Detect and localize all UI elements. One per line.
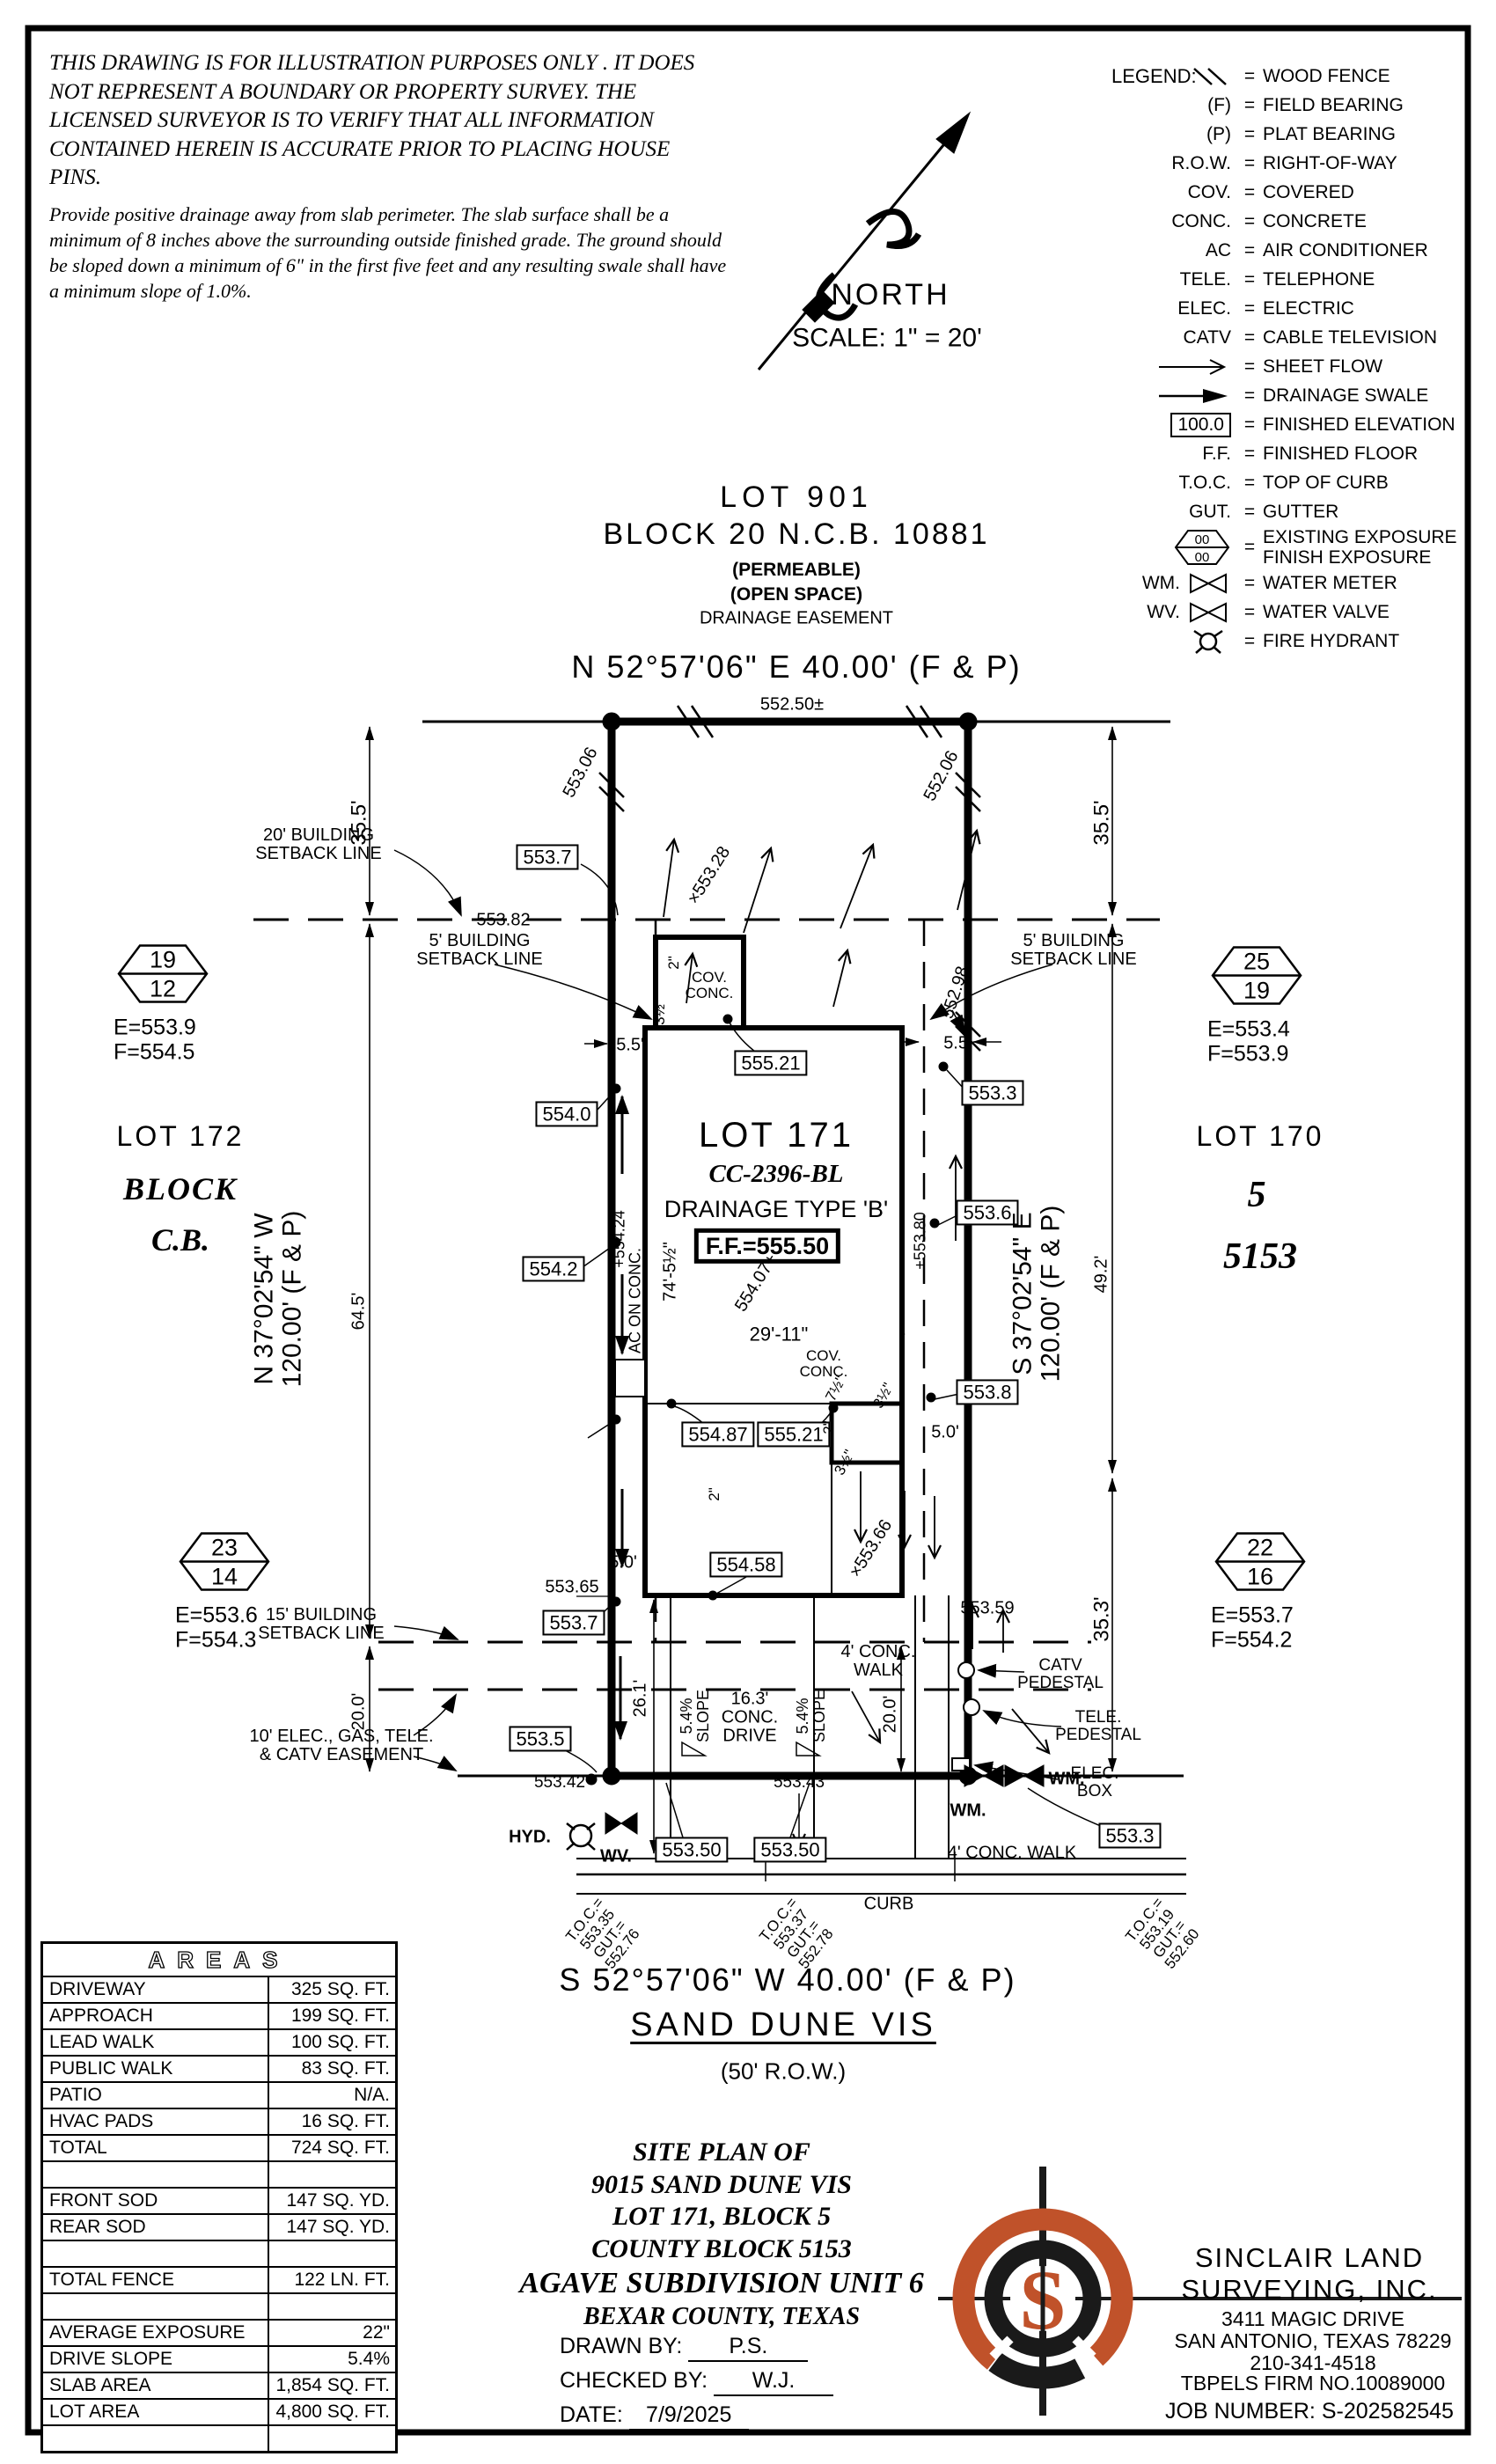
areas-table-row: DRIVEWAY325 SQ. FT. [43,1977,395,2004]
area-value: 122 LN. FT. [294,2270,390,2291]
plan-label: 5.5' [943,1035,972,1053]
svg-text:23: 23 [211,1535,238,1561]
legend-label: SHEET FLOW [1263,356,1382,377]
legend-row: CONC.=CONCRETE [1104,207,1474,236]
equals-sign: = [1236,631,1263,652]
area-label: DRIVEWAY [49,1979,146,2000]
equals-sign: = [1236,327,1263,348]
legend-row: CATV=CABLE TELEVISION [1104,323,1474,352]
equals-sign: = [1236,66,1263,87]
area-value: 724 SQ. FT. [291,2138,390,2159]
area-label: PATIO [49,2085,102,2106]
plan-label: CC-2396-BL [708,1161,843,1187]
equals-sign: = [1236,502,1263,523]
equals-sign: = [1236,573,1263,594]
plan-label: 5 [1248,1176,1266,1214]
area-value: 147 SQ. YD. [286,2217,390,2238]
equals-sign: = [1236,182,1263,203]
north-label: NORTH [831,280,950,312]
area-value: 199 SQ. FT. [291,2006,390,2027]
areas-table-row: APPROACH199 SQ. FT. [43,2004,395,2030]
area-label: PUBLIC WALK [49,2058,172,2079]
legend-label: PLAT BEARING [1263,124,1396,144]
legend-row: 100.0=FINISHED ELEVATION [1104,410,1474,439]
legend-label: FIRE HYDRANT [1263,631,1399,651]
legend-row: F.F.=FINISHED FLOOR [1104,439,1474,468]
legend-key: COV. [1104,182,1236,203]
legend-key: T.O.C. [1104,473,1236,494]
legend-label: COVERED [1263,182,1354,202]
plan-label: 553.7 [542,1610,605,1635]
plan-label: 553.59 [960,1600,1014,1618]
title-line: 9015 SAND DUNE VIS [475,2169,968,2202]
plan-label: 49.2' [1093,1256,1111,1294]
plan-label: CATVPEDESTAL [1017,1657,1104,1692]
exposure-hexagon: 19 12 E=553.9 F=554.5 [114,939,212,1065]
company-address1: 3411 MAGIC DRIVE [1221,2307,1404,2331]
areas-table-row: FRONT SOD147 SQ. YD. [43,2189,395,2215]
legend-label: WOOD FENCE [1263,66,1390,86]
plan-label: 553.42 [534,1774,585,1792]
legend-row: TELE.=TELEPHONE [1104,265,1474,294]
plan-label: 553.8 [956,1379,1018,1404]
disclaimer-notes: THIS DRAWING IS FOR ILLUSTRATION PURPOSE… [49,49,727,304]
areas-table-row: PUBLIC WALK83 SQ. FT. [43,2057,395,2083]
lot-172-label: LOT 172 [117,1122,245,1152]
legend-row: T.O.C.=TOP OF CURB [1104,468,1474,497]
legend-label: CONCRETE [1263,211,1367,231]
setback-5-right-label: 5' BUILDINGSETBACK LINE [1010,932,1136,969]
plan-label: 2" [707,1487,722,1501]
area-value: 83 SQ. FT. [302,2058,390,2079]
legend-row: WM.=WATER METER [1104,568,1474,598]
areas-table-divider [268,1976,269,2451]
areas-table-row [43,2294,395,2321]
legend-label: TELEPHONE [1263,269,1375,290]
plan-label: +553.80 [913,1212,929,1270]
legend-row: WV.=WATER VALVE [1104,598,1474,627]
area-label: REAR SOD [49,2217,146,2238]
legend-row: =FIRE HYDRANT [1104,627,1474,656]
plan-label: 554.0 [535,1101,598,1126]
area-label: TOTAL [49,2138,107,2159]
plan-label: 553.3 [1098,1822,1161,1848]
existing-elevation: E=553.7 [1211,1603,1309,1628]
areas-table: AREAS DRIVEWAY325 SQ. FT.APPROACH199 SQ.… [40,1941,398,2453]
svg-text:12: 12 [150,976,176,1002]
hex-icon: 0000 [1104,526,1236,568]
plan-label: 74'-5½" [662,1242,680,1302]
plan-label: (OPEN SPACE) [730,585,862,605]
plan-label: HYD. [509,1829,551,1847]
legend-row: (P)=PLAT BEARING [1104,120,1474,149]
equals-sign: = [1236,240,1263,261]
finish-elevation: F=553.9 [1207,1042,1306,1067]
areas-table-row: HVAC PADS16 SQ. FT. [43,2109,395,2136]
title-line: LOT 171, BLOCK 5 [475,2201,968,2233]
plan-label: 64.5' [350,1293,369,1331]
plan-label: 553.3 [961,1080,1023,1105]
plan-label: 5.5' [616,1037,644,1055]
plan-label: DRAINAGE TYPE 'B' [664,1197,888,1221]
area-label: TOTAL FENCE [49,2270,174,2291]
equals-sign: = [1236,444,1263,465]
legend: LEGEND: =WOOD FENCE(F)=FIELD BEARING(P)=… [1104,62,1474,656]
drawn-by-label: DRAWN BY: [560,2334,682,2358]
legend-row: COV.=COVERED [1104,178,1474,207]
bearing-north: N 52°57'06" E 40.00' (F & P) [571,650,1021,684]
bowtie-icon: WV. [1104,601,1236,624]
arrow-open-icon [1104,356,1236,378]
legend-key: TELE. [1104,269,1236,290]
existing-elevation: E=553.4 [1207,1017,1306,1042]
areas-table-row: PATION/A. [43,2083,395,2109]
plan-label: 553.5 [509,1726,571,1751]
area-value: 4,800 SQ. FT. [275,2402,390,2423]
plan-label: 5.0' [931,1424,959,1442]
plan-label: DRAINAGE EASEMENT [700,610,893,628]
area-label: DRIVE SLOPE [49,2349,172,2370]
finish-elevation: F=554.5 [114,1040,212,1065]
fire-hydrant-icon [567,1823,595,1850]
plan-label: C.B. [151,1224,209,1258]
svg-text:19: 19 [1243,978,1270,1004]
area-value: 16 SQ. FT. [302,2111,390,2132]
svg-text:22: 22 [1247,1535,1273,1561]
area-label: LOT AREA [49,2402,139,2423]
bearing-south: S 52°57'06" W 40.00' (F & P) [559,1963,1016,1997]
exposure-hexagon: 22 16 E=553.7 F=554.2 [1211,1527,1309,1653]
legend-label: CABLE TELEVISION [1263,327,1437,348]
title-line: BEXAR COUNTY, TEXAS [475,2302,968,2332]
conc-drive-label: 16.3'CONC.DRIVE [722,1690,778,1746]
checked-by-value: W.J. [714,2368,833,2396]
plan-label: 553.7 [516,844,578,869]
equals-sign: = [1236,211,1263,232]
equals-sign: = [1236,385,1263,407]
area-label: SLAB AREA [49,2375,151,2396]
areas-table-row: LOT AREA4,800 SQ. FT. [43,2400,395,2426]
lot-901-label: LOT 901 [720,482,873,514]
scale-label: SCALE: 1" = 20' [792,324,982,352]
areas-table-row [43,2426,395,2451]
plan-label: WM. [950,1802,986,1821]
setback-5-left-label: 5' BUILDINGSETBACK LINE [416,932,542,969]
legend-key: GUT. [1104,502,1236,523]
legend-label: ELECTRIC [1263,298,1354,319]
legend-label: EXISTING EXPOSUREFINISH EXPOSURE [1263,527,1457,568]
equals-sign: = [1236,298,1263,319]
legend-key: R.O.W. [1104,153,1236,174]
legend-row: =DRAINAGE SWALE [1104,381,1474,410]
legend-key: CATV [1104,327,1236,348]
equals-sign: = [1236,356,1263,378]
area-value: 22" [363,2322,390,2343]
bearing-west: N 37°02'54" W120.00' (F & P) [251,1211,306,1388]
plan-label: 20.0' [350,1693,369,1731]
legend-row: GUT.=GUTTER [1104,497,1474,526]
legend-title: LEGEND: [1111,65,1197,88]
plan-label: COV.CONC. [800,1348,848,1380]
areas-table-row: TOTAL724 SQ. FT. [43,2136,395,2162]
arrow-solid-icon [1104,385,1236,407]
hexagon-icon: 25 19 [1207,941,1306,1011]
plan-label: 26.1' [632,1680,650,1718]
plan-label: 553.82 [476,912,530,930]
existing-elevation: E=553.6 [175,1603,274,1628]
hydrant-icon [1104,627,1236,656]
areas-table-row: DRIVE SLOPE5.4% [43,2347,395,2373]
svg-text:25: 25 [1243,949,1270,975]
plan-label: 552.50± [760,696,824,715]
plan-label: BLOCK [123,1173,238,1206]
signoff-block: DRAWN BY: P.S. CHECKED BY: W.J. DATE: 7/… [560,2334,833,2437]
plan-label: 554.87 [681,1421,754,1447]
equals-sign: = [1236,124,1263,145]
equals-sign: = [1236,473,1263,494]
bowtie-icon: WM. [1104,572,1236,595]
plan-label: 554.58 [709,1551,782,1577]
plan-label: (PERMEABLE) [732,561,861,580]
svg-text:16: 16 [1247,1564,1273,1590]
svg-text:19: 19 [150,947,176,973]
equals-sign: = [1236,95,1263,116]
svg-text:00: 00 [1195,532,1210,547]
legend-label: AIR CONDITIONER [1263,240,1428,260]
row-label: (50' R.O.W.) [721,2059,846,2083]
svg-text:14: 14 [211,1564,238,1590]
legend-label: WATER VALVE [1263,602,1390,622]
plan-label: COV.CONC. [686,970,734,1001]
area-label: LEAD WALK [49,2032,154,2053]
plan-label: 35.5' [1090,800,1112,845]
legend-label: DRAINAGE SWALE [1263,385,1428,406]
plan-label: 35.3' [1090,1596,1112,1641]
legend-key: F.F. [1104,444,1236,465]
areas-table-row: TOTAL FENCE122 LN. FT. [43,2268,395,2294]
legend-key: AC [1104,240,1236,261]
legend-row: 0000=EXISTING EXPOSUREFINISH EXPOSURE [1104,526,1474,568]
equals-sign: = [1236,537,1263,558]
plan-label: 5153 [1223,1237,1297,1276]
drainage-note-text: Provide positive drainage away from slab… [49,202,727,304]
areas-table-row: REAR SOD147 SQ. YD. [43,2215,395,2241]
title-line: SITE PLAN OF [475,2137,968,2169]
legend-row: R.O.W.=RIGHT-OF-WAY [1104,149,1474,178]
area-label: FRONT SOD [49,2190,158,2211]
exposure-hexagon: 25 19 E=553.4 F=553.9 [1207,941,1306,1067]
area-value: N/A. [354,2085,390,2106]
date-label: DATE: [560,2402,623,2427]
plan-label: 553.43 [774,1774,825,1792]
company-address2: SAN ANTONIO, TEXAS 78229 [1175,2329,1452,2353]
areas-table-row: LEAD WALK100 SQ. FT. [43,2030,395,2057]
legend-label: GUTTER [1263,502,1338,522]
equals-sign: = [1236,414,1263,436]
company-name-line2: S​URVEYING, INC. [1181,2274,1437,2306]
plan-label: WV. [600,1848,632,1866]
title-line: COUNTY BLOCK 5153 [475,2233,968,2266]
legend-row: ELEC.=ELECTRIC [1104,294,1474,323]
date-value: 7/9/2025 [629,2402,749,2431]
company-name-line1: SINCLAIR LAND [1195,2242,1424,2274]
plan-label: 29'-11" [750,1324,809,1344]
legend-key: (P) [1104,124,1236,145]
area-label: APPROACH [49,2006,153,2027]
lot-171-label: LOT 171 [699,1117,854,1154]
legend-key: CONC. [1104,211,1236,232]
setback-15-label: 15' BUILDINGSETBACK LINE [258,1606,384,1643]
plan-label: WM. [1048,1771,1084,1789]
svg-text:00: 00 [1195,550,1210,565]
plan-label: AC ON CONC. [627,1248,644,1353]
finish-elevation: F=554.2 [1211,1628,1309,1653]
areas-table-title: AREAS [43,1944,395,1977]
equals-sign: = [1236,602,1263,623]
area-label: AVERAGE EXPOSURE [49,2322,246,2343]
legend-label: FINISHED ELEVATION [1263,414,1456,435]
hexagon-icon: 22 16 [1211,1527,1309,1597]
lot-170-label: LOT 170 [1197,1122,1324,1152]
area-value: 1,854 SQ. FT. [275,2375,390,2396]
areas-table-row: SLAB AREA1,854 SQ. FT. [43,2373,395,2400]
bearing-east: S 37°02'54" E120.00' (F & P) [1009,1206,1065,1382]
areas-table-row [43,2241,395,2268]
area-value: 5.4% [348,2349,390,2370]
legend-key: (F) [1104,95,1236,116]
hexagon-icon: 19 12 [114,939,212,1009]
legend-row: =SHEET FLOW [1104,352,1474,381]
plan-label: CURB [864,1896,914,1914]
title-block: SITE PLAN OF 9015 SAND DUNE VIS LOT 171,… [475,2137,968,2332]
areas-table-row [43,2162,395,2189]
area-value: 147 SQ. YD. [286,2190,390,2211]
checked-by-label: CHECKED BY: [560,2368,708,2393]
plan-label: 5.0' [609,1554,637,1573]
plan-label: 20.0' [882,1696,900,1734]
plan-label: 553.65 [545,1579,598,1597]
plan-label: 4' CONC. WALK [948,1844,1076,1863]
plan-label: 553.50 [753,1837,826,1862]
plan-label: TELE.PEDESTAL [1055,1709,1141,1744]
area-label: HVAC PADS [49,2111,153,2132]
legend-label: TOP OF CURB [1263,473,1389,493]
legend-label: WATER METER [1263,573,1397,593]
easement-label: 10' ELEC., GAS, TELE.& CATV EASEMENT [249,1727,433,1764]
plan-label: 4' CONC.WALK [841,1643,916,1680]
equals-sign: = [1236,153,1263,174]
block-20-label: BLOCK 20 N.C.B. 10881 [603,519,989,551]
plan-label: 5.4%SLOPE [678,1690,712,1742]
legend-row: (F)=FIELD BEARING [1104,91,1474,120]
hexagon-icon: 23 14 [175,1527,274,1597]
plan-label: 5.4%SLOPE [795,1690,828,1742]
existing-elevation: E=553.9 [114,1016,212,1040]
areas-table-row: AVERAGE EXPOSURE22" [43,2321,395,2347]
legend-label: FIELD BEARING [1263,95,1404,115]
site-plan-page: S THIS DRAWING IS FOR ILLUSTRATION PURPO… [0,0,1496,2464]
plan-label: 553.50 [655,1837,728,1862]
plan-label: 554.2 [522,1256,584,1281]
area-value: 325 SQ. FT. [291,1979,390,2000]
exposure-hexagon: 23 14 E=553.6 F=554.3 [175,1527,274,1653]
equals-sign: = [1236,269,1263,290]
legend-row: AC=AIR CONDITIONER [1104,236,1474,265]
plan-label: 555.21 [734,1050,807,1075]
street-name: SAND DUNE VIS [630,2008,936,2043]
drawn-by-value: P.S. [688,2334,808,2362]
finish-elevation: F=554.3 [175,1628,274,1653]
plan-label: 2" [666,956,682,970]
plan-label: 3½" [652,999,668,1025]
job-number: JOB NUMBER: S-202582545 [1165,2399,1454,2424]
plan-label: 2" [821,1420,837,1434]
legend-label: RIGHT-OF-WAY [1263,153,1397,173]
legend-label: FINISHED FLOOR [1263,444,1418,464]
water-valve-icon [605,1813,637,1834]
setback-20-label: 20' BUILDINGSETBACK LINE [255,826,381,863]
area-value: 100 SQ. FT. [291,2032,390,2053]
box-icon: 100.0 [1104,413,1236,437]
disclaimer-text: THIS DRAWING IS FOR ILLUSTRATION PURPOSE… [49,49,727,193]
legend-key: ELEC. [1104,298,1236,319]
company-firm-number: TBPELS FIRM NO.10089000 [1181,2372,1445,2395]
title-line: AGAVE SUBDIVISION UNIT 6 [475,2265,968,2301]
